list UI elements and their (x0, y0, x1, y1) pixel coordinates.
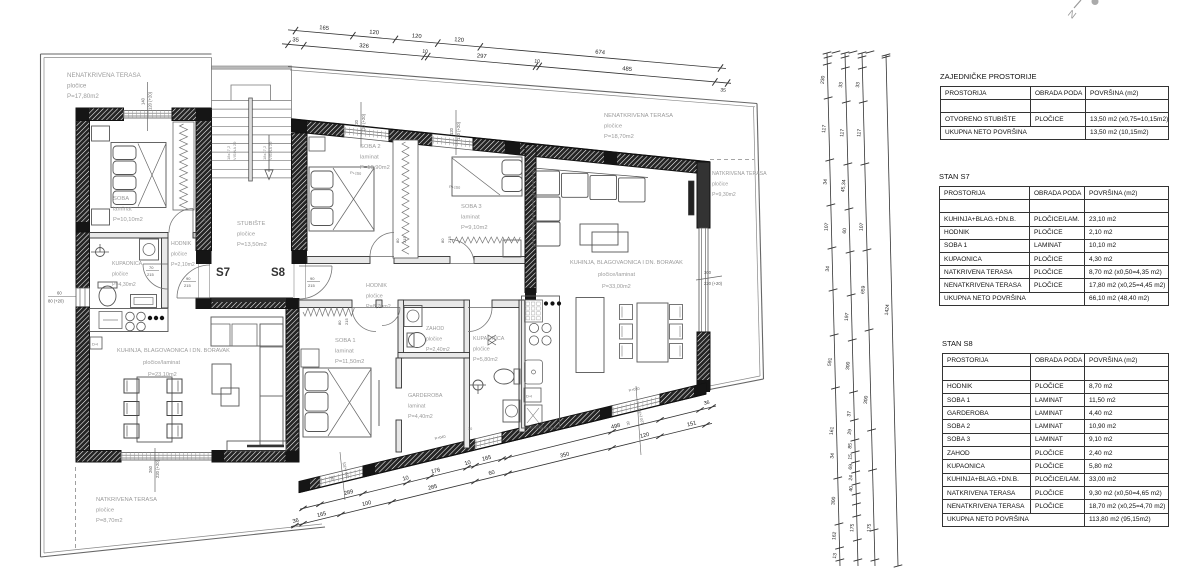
svg-text:13: 13 (832, 553, 839, 559)
svg-text:80 (+20): 80 (+20) (48, 299, 64, 304)
svg-text:230: 230 (820, 75, 827, 84)
svg-text:40: 40 (848, 486, 855, 492)
svg-text:HODNIK: HODNIK (366, 283, 387, 289)
svg-text:175: 175 (866, 523, 873, 532)
svg-text:30: 30 (626, 421, 631, 426)
svg-text:70: 70 (149, 265, 154, 270)
svg-text:120 (+20): 120 (+20) (637, 407, 645, 425)
svg-text:KUHINJA, BLAGOVAONICA I DN. BO: KUHINJA, BLAGOVAONICA I DN. BORAVAK (117, 348, 230, 354)
svg-text:P=4,40m2: P=4,40m2 (408, 414, 433, 420)
svg-text:85: 85 (847, 443, 854, 449)
svg-text:P=33,00m2: P=33,00m2 (602, 284, 631, 290)
svg-text:P=10,90m2: P=10,90m2 (360, 165, 390, 171)
svg-text:120: 120 (369, 30, 379, 37)
svg-text:P+030: P+030 (628, 387, 640, 393)
svg-text:SOBA 2: SOBA 2 (360, 144, 381, 150)
svg-text:591: 591 (827, 357, 834, 366)
svg-text:300: 300 (830, 496, 837, 505)
svg-text:KUPAONICA: KUPAONICA (112, 261, 143, 267)
svg-text:162: 162 (831, 531, 838, 540)
svg-text:laminat: laminat (408, 404, 426, 410)
svg-text:300: 300 (704, 270, 712, 275)
svg-text:120 (+20): 120 (+20) (456, 121, 461, 140)
svg-text:KUHINJA, BLAGOVAONICA I DN. BO: KUHINJA, BLAGOVAONICA I DN. BORAVAK (570, 260, 683, 266)
svg-text:300: 300 (863, 395, 870, 404)
svg-text:45,34: 45,34 (840, 179, 847, 192)
svg-text:215: 215 (402, 236, 407, 243)
svg-text:659: 659 (860, 285, 867, 294)
svg-text:120: 120 (449, 127, 454, 135)
svg-text:36: 36 (292, 518, 299, 525)
svg-text:10: 10 (468, 427, 472, 431)
svg-text:NATKRIVENA TERASA: NATKRIVENA TERASA (96, 497, 157, 503)
svg-text:140: 140 (141, 97, 146, 105)
svg-text:KUPAONICA: KUPAONICA (473, 336, 505, 342)
svg-text:NENATKRIVENA TERASA: NENATKRIVENA TERASA (604, 113, 673, 119)
svg-text:P=9,30m2: P=9,30m2 (712, 192, 736, 198)
svg-text:VISINA 29: VISINA 29 (268, 141, 273, 160)
svg-text:60: 60 (842, 228, 849, 234)
svg-text:P=5,80m2: P=5,80m2 (473, 357, 498, 363)
svg-text:33: 33 (855, 82, 862, 88)
svg-text:34: 34 (829, 453, 836, 459)
svg-text:326: 326 (359, 43, 369, 50)
svg-text:220 (+20): 220 (+20) (704, 281, 723, 286)
svg-text:300: 300 (845, 361, 852, 370)
svg-text:107: 107 (858, 222, 865, 231)
svg-text:SOBA: SOBA (113, 196, 129, 202)
svg-text:P=2,10m2: P=2,10m2 (171, 262, 195, 268)
svg-text:P=11,50m2: P=11,50m2 (335, 359, 364, 365)
svg-text:215: 215 (344, 318, 349, 325)
svg-text:34: 34 (823, 179, 830, 185)
svg-text:69: 69 (848, 464, 855, 470)
svg-text:34: 34 (825, 266, 832, 272)
svg-text:107: 107 (823, 222, 830, 231)
svg-text:175: 175 (849, 523, 856, 532)
svg-text:STUBIŠTE: STUBIŠTE (237, 220, 265, 227)
svg-text:90: 90 (310, 276, 315, 281)
svg-text:laminat: laminat (461, 215, 480, 221)
svg-text:485: 485 (622, 66, 632, 73)
svg-text:80: 80 (440, 238, 445, 243)
svg-text:80: 80 (337, 320, 342, 325)
svg-text:260: 260 (148, 465, 153, 473)
svg-text:215: 215 (202, 215, 207, 222)
svg-text:laminat: laminat (335, 349, 354, 355)
svg-text:pločice: pločice (473, 347, 490, 353)
svg-text:120 (+20): 120 (+20) (361, 113, 366, 132)
svg-text:215: 215 (184, 283, 191, 288)
svg-text:10: 10 (534, 58, 540, 64)
svg-text:18x17,2: 18x17,2 (262, 145, 267, 160)
svg-text:120: 120 (354, 119, 359, 127)
svg-text:pločice: pločice (712, 182, 728, 188)
svg-text:215: 215 (308, 283, 315, 288)
svg-text:215: 215 (447, 236, 452, 243)
svg-text:VISINA 29: VISINA 29 (232, 141, 237, 160)
svg-text:GARDEROBA: GARDEROBA (408, 393, 443, 399)
svg-text:18x17,2: 18x17,2 (226, 145, 231, 160)
svg-text:ZAHOD: ZAHOD (426, 326, 444, 332)
svg-text:120: 120 (454, 37, 464, 44)
svg-text:pločice: pločice (237, 232, 255, 238)
svg-text:HODNIK: HODNIK (171, 241, 192, 247)
svg-text:1424: 1424 (884, 304, 891, 316)
svg-text:laminat: laminat (360, 155, 379, 161)
svg-text:90: 90 (186, 276, 191, 281)
svg-text:P=8,70m2: P=8,70m2 (366, 304, 391, 310)
svg-text:NATKRIVENA TERASA: NATKRIVENA TERASA (712, 171, 767, 177)
svg-text:37: 37 (846, 411, 853, 417)
svg-text:117: 117 (856, 128, 863, 137)
svg-text:15: 15 (847, 454, 854, 460)
svg-text:S8: S8 (271, 267, 286, 279)
svg-text:80: 80 (395, 238, 400, 243)
svg-text:33: 33 (838, 82, 845, 88)
svg-text:pločice: pločice (171, 252, 187, 258)
svg-text:165: 165 (319, 25, 329, 32)
svg-text:pločice/laminat: pločice/laminat (143, 360, 180, 366)
svg-text:P=8,70m2: P=8,70m2 (96, 518, 123, 524)
svg-text:80: 80 (195, 217, 200, 222)
svg-text:10: 10 (422, 49, 428, 55)
svg-text:P=2,40m2: P=2,40m2 (426, 347, 450, 353)
svg-text:pločice: pločice (67, 83, 87, 90)
svg-text:P=13,50m2: P=13,50m2 (237, 242, 267, 248)
svg-text:P=9,10m2: P=9,10m2 (461, 225, 488, 231)
svg-text:P=23,10m2: P=23,10m2 (148, 372, 177, 378)
svg-text:NENATKRIVENA TERASA: NENATKRIVENA TERASA (67, 72, 142, 79)
svg-text:117: 117 (821, 124, 828, 133)
svg-text:SOBA 1: SOBA 1 (335, 338, 356, 344)
svg-text:297: 297 (477, 53, 487, 60)
svg-text:P=4,30m2: P=4,30m2 (112, 282, 136, 288)
svg-text:P=17,80m2: P=17,80m2 (67, 93, 99, 100)
svg-text:220 (+20): 220 (+20) (155, 459, 160, 478)
svg-text:pločice: pločice (112, 272, 128, 278)
svg-text:laminat: laminat (113, 207, 132, 213)
svg-text:P=18,70m2: P=18,70m2 (604, 134, 634, 140)
svg-text:120: 120 (412, 33, 422, 40)
svg-text:P=10,10m2: P=10,10m2 (113, 217, 143, 223)
svg-text:P+150: P+150 (350, 171, 361, 176)
svg-text:D+I: D+I (92, 342, 98, 347)
svg-text:pločice/laminat: pločice/laminat (598, 272, 635, 278)
svg-text:pločice: pločice (604, 124, 622, 130)
svg-text:P+150: P+150 (449, 185, 460, 190)
svg-text:60: 60 (57, 291, 62, 296)
svg-text:SOBA 3: SOBA 3 (461, 204, 482, 210)
svg-text:pločice: pločice (426, 337, 442, 343)
svg-text:197: 197 (844, 312, 851, 321)
svg-text:120 (+20): 120 (+20) (148, 91, 153, 110)
svg-text:pločice: pločice (96, 508, 114, 514)
svg-text:pločice: pločice (366, 294, 383, 300)
svg-text:215: 215 (147, 272, 154, 277)
svg-text:24: 24 (848, 475, 855, 481)
svg-text:S7: S7 (216, 267, 230, 279)
svg-text:35: 35 (720, 87, 726, 93)
svg-text:P+040: P+040 (434, 435, 446, 441)
svg-text:29: 29 (847, 429, 854, 435)
svg-text:N: N (1065, 8, 1077, 21)
svg-text:674: 674 (595, 49, 606, 56)
svg-text:10: 10 (464, 460, 471, 467)
svg-text:36: 36 (703, 400, 710, 407)
svg-text:161: 161 (829, 426, 836, 435)
svg-text:35: 35 (292, 37, 299, 44)
svg-text:60: 60 (488, 470, 495, 477)
svg-text:D+I: D+I (526, 394, 532, 399)
svg-text:117: 117 (839, 128, 846, 137)
